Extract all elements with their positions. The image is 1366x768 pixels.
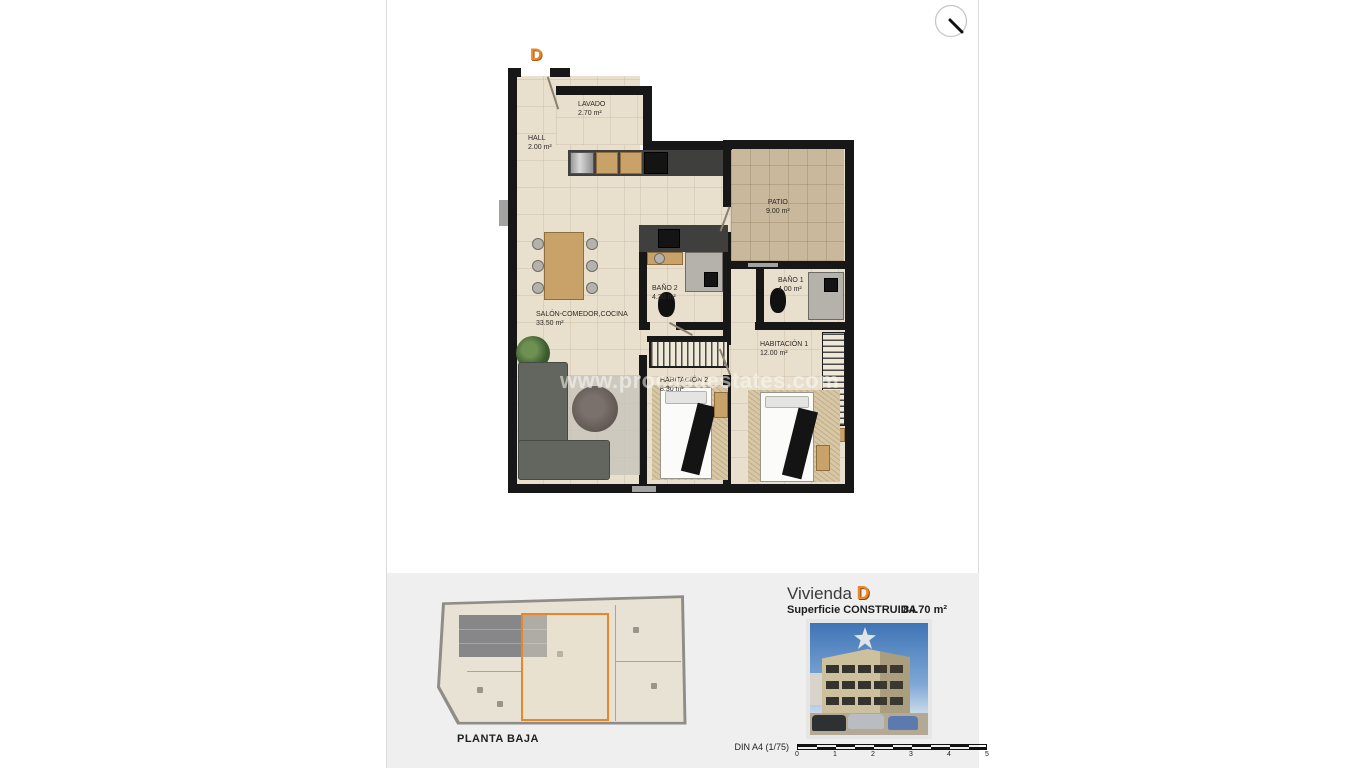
room-area: 4.00 m² <box>778 285 804 294</box>
room-label-hall: HALL 2.00 m² <box>528 134 552 152</box>
wall-segment <box>723 149 731 207</box>
room-name: PATIO <box>766 198 790 207</box>
room-label-bano2: BAÑO 2 4.30 m² <box>652 284 678 302</box>
site-plan-furniture <box>497 701 503 707</box>
site-plan-line <box>467 671 521 672</box>
bottom-window <box>632 486 656 492</box>
photo-car <box>888 716 918 730</box>
wall-segment <box>639 322 650 330</box>
site-plan-label: PLANTA BAJA <box>457 733 539 745</box>
chair-icon <box>532 282 544 294</box>
scale-bar <box>797 744 987 750</box>
scale-tick: 1 <box>830 751 840 758</box>
bed-icon <box>760 392 814 482</box>
photo-car <box>812 715 846 731</box>
wall-segment <box>845 140 854 493</box>
surface-value: 84.70 m² <box>903 604 947 616</box>
site-plan-furniture <box>651 683 657 689</box>
room-name: LAVADO <box>578 100 605 109</box>
shower-tray-icon <box>824 278 838 292</box>
wall-segment <box>723 140 854 149</box>
building-photo <box>806 619 932 739</box>
scale-tick: 3 <box>906 751 916 758</box>
room-name: BAÑO 2 <box>652 284 678 293</box>
room-area: 33.50 m² <box>536 319 628 328</box>
bed-icon <box>660 387 712 479</box>
vanity-icon <box>647 252 683 265</box>
scale-label: DIN A4 (1/75) <box>717 742 789 752</box>
scale-bar-bottom <box>798 747 986 749</box>
chair-icon <box>532 238 544 250</box>
exterior-pier <box>499 200 508 226</box>
wall-segment <box>550 68 570 77</box>
oven-icon <box>644 152 668 174</box>
wardrobe-icon <box>649 340 729 368</box>
wall-segment <box>639 252 647 330</box>
room-name: SALÓN-COMEDOR,COCINA <box>536 310 628 319</box>
room-name: HALL <box>528 134 552 143</box>
blanket-icon <box>782 407 818 478</box>
patio-window <box>748 263 778 267</box>
nightstand-icon <box>714 392 728 418</box>
scale-tick: 4 <box>944 751 954 758</box>
sofa-icon <box>518 440 610 480</box>
watermark: www.procasaestates.com <box>560 368 810 394</box>
room-name: HABITACIÓN 1 <box>760 340 808 349</box>
wall-segment <box>508 68 517 493</box>
chair-icon <box>586 238 598 250</box>
photo-neighbor-building <box>810 673 822 705</box>
site-plan-furniture <box>633 627 639 633</box>
wall-segment <box>556 86 652 95</box>
chair-icon <box>586 282 598 294</box>
photo-car <box>848 714 884 729</box>
room-label-bano1: BAÑO 1 4.00 m² <box>778 276 804 294</box>
blanket-icon <box>680 403 715 476</box>
wall-segment <box>723 261 854 269</box>
kitchen-cabinet <box>596 152 618 174</box>
site-plan-line <box>615 605 616 721</box>
nightstand-icon <box>816 445 830 471</box>
unit-title: Vivienda D <box>787 583 870 604</box>
pillow-icon <box>765 396 809 408</box>
room-area: 9.00 m² <box>766 207 790 216</box>
scale-tick: 5 <box>982 751 992 758</box>
room-area: 4.30 m² <box>652 293 678 302</box>
room-area: 2.70 m² <box>578 109 605 118</box>
surface-label: Superficie CONSTRUIDA <box>787 604 917 616</box>
photo-building <box>822 649 910 717</box>
floor-plan: D <box>508 40 854 495</box>
kitchen-island <box>639 225 728 252</box>
room-label-salon: SALÓN-COMEDOR,COCINA 33.50 m² <box>536 310 628 328</box>
cooktop-icon <box>658 229 680 248</box>
room-area: 12.00 m² <box>760 349 808 358</box>
photo-building-side <box>880 649 910 717</box>
magnifier-icon[interactable] <box>933 3 970 40</box>
unit-title-prefix: Vivienda <box>787 584 852 603</box>
unit-title-letter: D <box>857 583 870 603</box>
site-plan-furniture <box>477 687 483 693</box>
scale-tick: 2 <box>868 751 878 758</box>
shower-tray-icon <box>704 272 718 287</box>
wall-segment <box>508 484 854 493</box>
sheet: D <box>0 0 1366 768</box>
wall-segment <box>643 141 732 150</box>
fridge-icon <box>570 152 594 174</box>
photo-palm <box>854 627 876 649</box>
highlighted-unit-d <box>521 613 609 721</box>
chair-icon <box>586 260 598 272</box>
wall-segment <box>723 269 731 345</box>
scale-tick: 0 <box>792 751 802 758</box>
site-plan-line <box>615 661 681 662</box>
wall-segment <box>756 269 764 330</box>
room-label-lavado: LAVADO 2.70 m² <box>578 100 605 118</box>
chair-icon <box>532 260 544 272</box>
unit-letter-label: D <box>530 45 542 65</box>
wall-segment <box>755 322 854 330</box>
room-area: 2.00 m² <box>528 143 552 152</box>
sink-icon <box>654 253 665 264</box>
site-plan-thumbnail <box>437 591 689 733</box>
dining-table-icon <box>544 232 584 300</box>
footer-panel: PLANTA BAJA Vivienda D Superficie CONSTR… <box>387 573 979 768</box>
kitchen-cabinet <box>620 152 642 174</box>
room-name: BAÑO 1 <box>778 276 804 285</box>
room-label-habitacion1: HABITACIÓN 1 12.00 m² <box>760 340 808 358</box>
room-label-patio: PATIO 9.00 m² <box>766 198 790 216</box>
